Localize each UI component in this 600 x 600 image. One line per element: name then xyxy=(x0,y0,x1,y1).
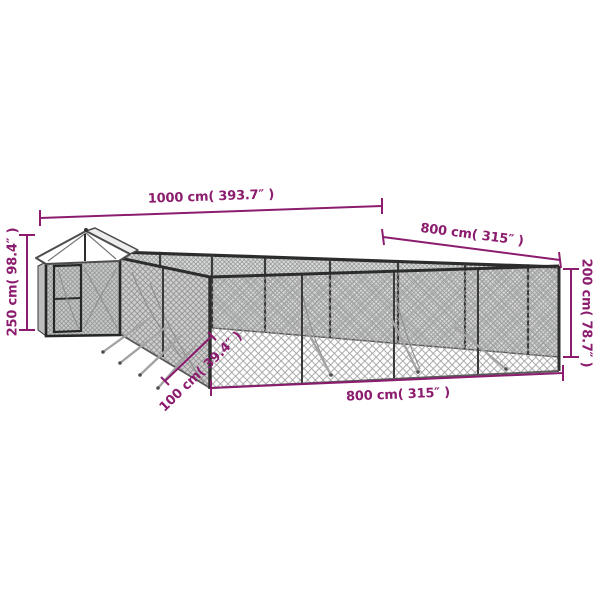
post-cap xyxy=(158,252,161,255)
stake-tip xyxy=(138,373,142,377)
shelter-front-mesh xyxy=(46,257,120,336)
dimension-label: 800 cm( 315″ ) xyxy=(346,385,451,404)
stake-tip xyxy=(504,367,508,371)
stake-tip xyxy=(416,370,420,374)
stake-tip xyxy=(156,386,160,390)
dimension-right-height: 200 cm( 78.7″ ) xyxy=(563,259,594,368)
dimension-cap xyxy=(559,252,561,268)
stake-tip xyxy=(329,373,333,377)
dimension-label: 800 cm( 315″ ) xyxy=(419,221,524,249)
dimension-line xyxy=(40,206,382,218)
dimension-left-height: 250 cm( 98.4″ ) xyxy=(6,228,36,337)
dimension-cap xyxy=(382,229,384,245)
product-dimension-image: 1000 cm( 393.7″ ) 800 cm( 315″ ) 250 cm(… xyxy=(0,0,600,600)
kennel-illustration xyxy=(36,228,559,390)
dimension-top-width: 1000 cm( 393.7″ ) xyxy=(40,187,382,226)
stake-tip xyxy=(118,361,122,365)
dimension-label: 1000 cm( 393.7″ ) xyxy=(148,187,275,206)
stake-tip xyxy=(101,350,105,354)
kennel-dimension-diagram: 1000 cm( 393.7″ ) 800 cm( 315″ ) 250 cm(… xyxy=(0,0,600,600)
dimension-label: 250 cm( 98.4″ ) xyxy=(6,228,21,337)
post-cap xyxy=(263,255,266,258)
shelter-roof-finial xyxy=(84,228,88,232)
post-cap xyxy=(396,260,399,263)
dimension-label: 200 cm( 78.7″ ) xyxy=(579,259,594,368)
